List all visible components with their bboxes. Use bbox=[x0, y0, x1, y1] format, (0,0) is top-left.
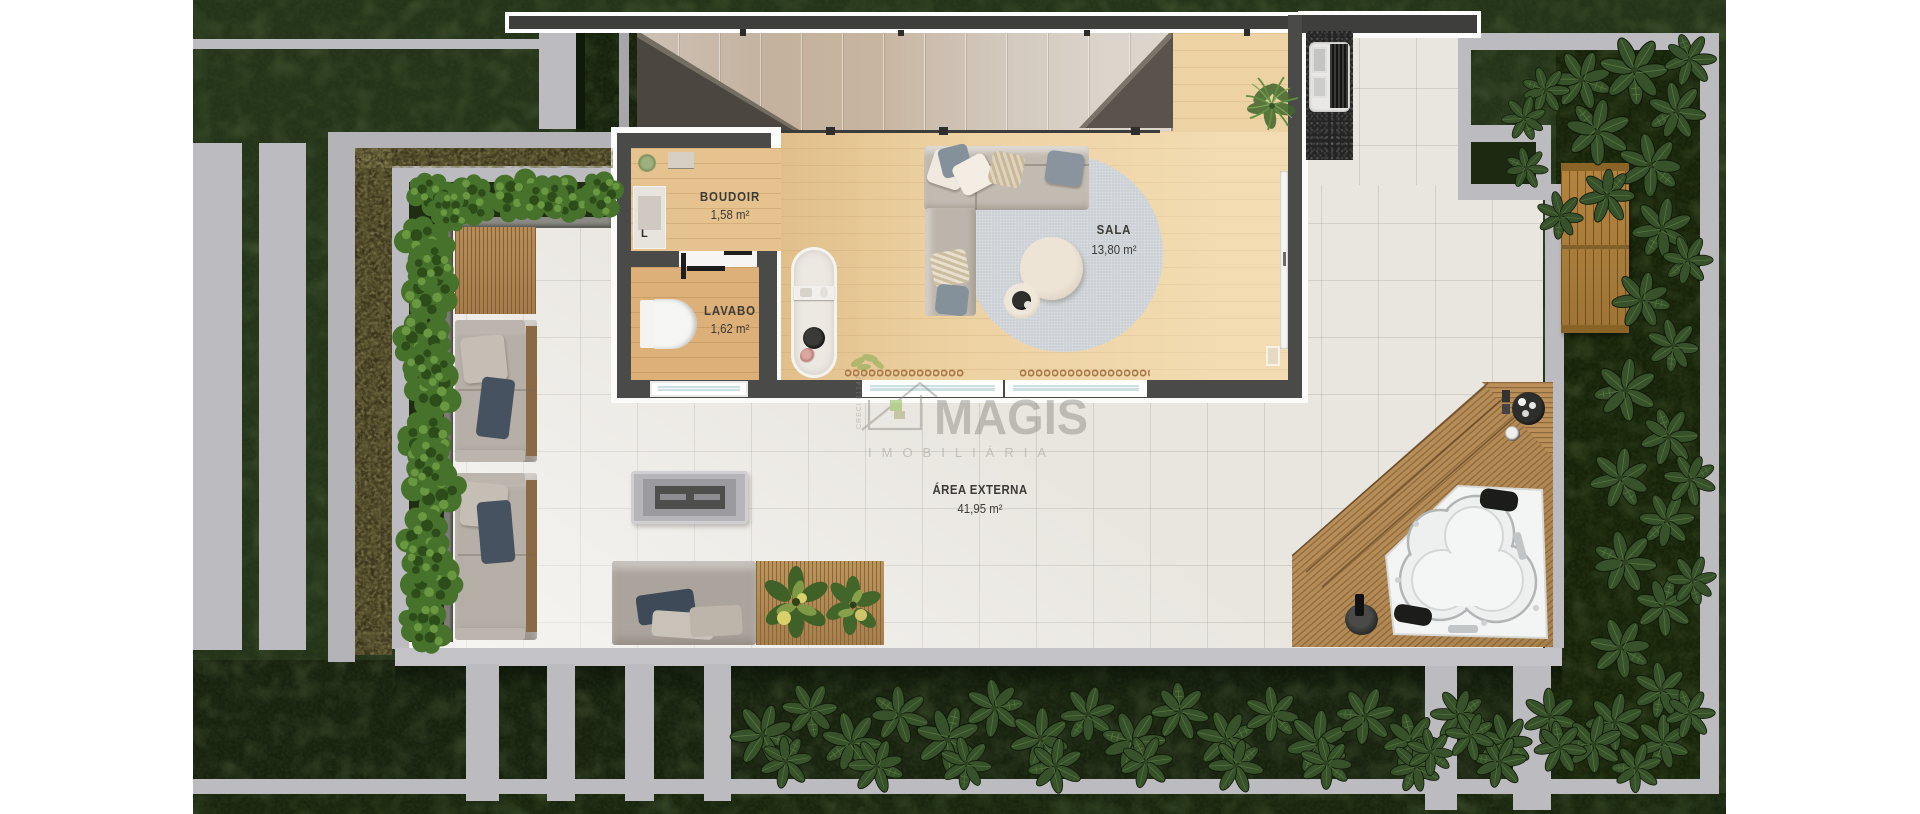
svg-text:IMOBILIÁRIA: IMOBILIÁRIA bbox=[868, 445, 1056, 460]
svg-text:CRECI 8114J: CRECI 8114J bbox=[856, 376, 863, 429]
svg-text:MAGIS: MAGIS bbox=[934, 391, 1088, 445]
